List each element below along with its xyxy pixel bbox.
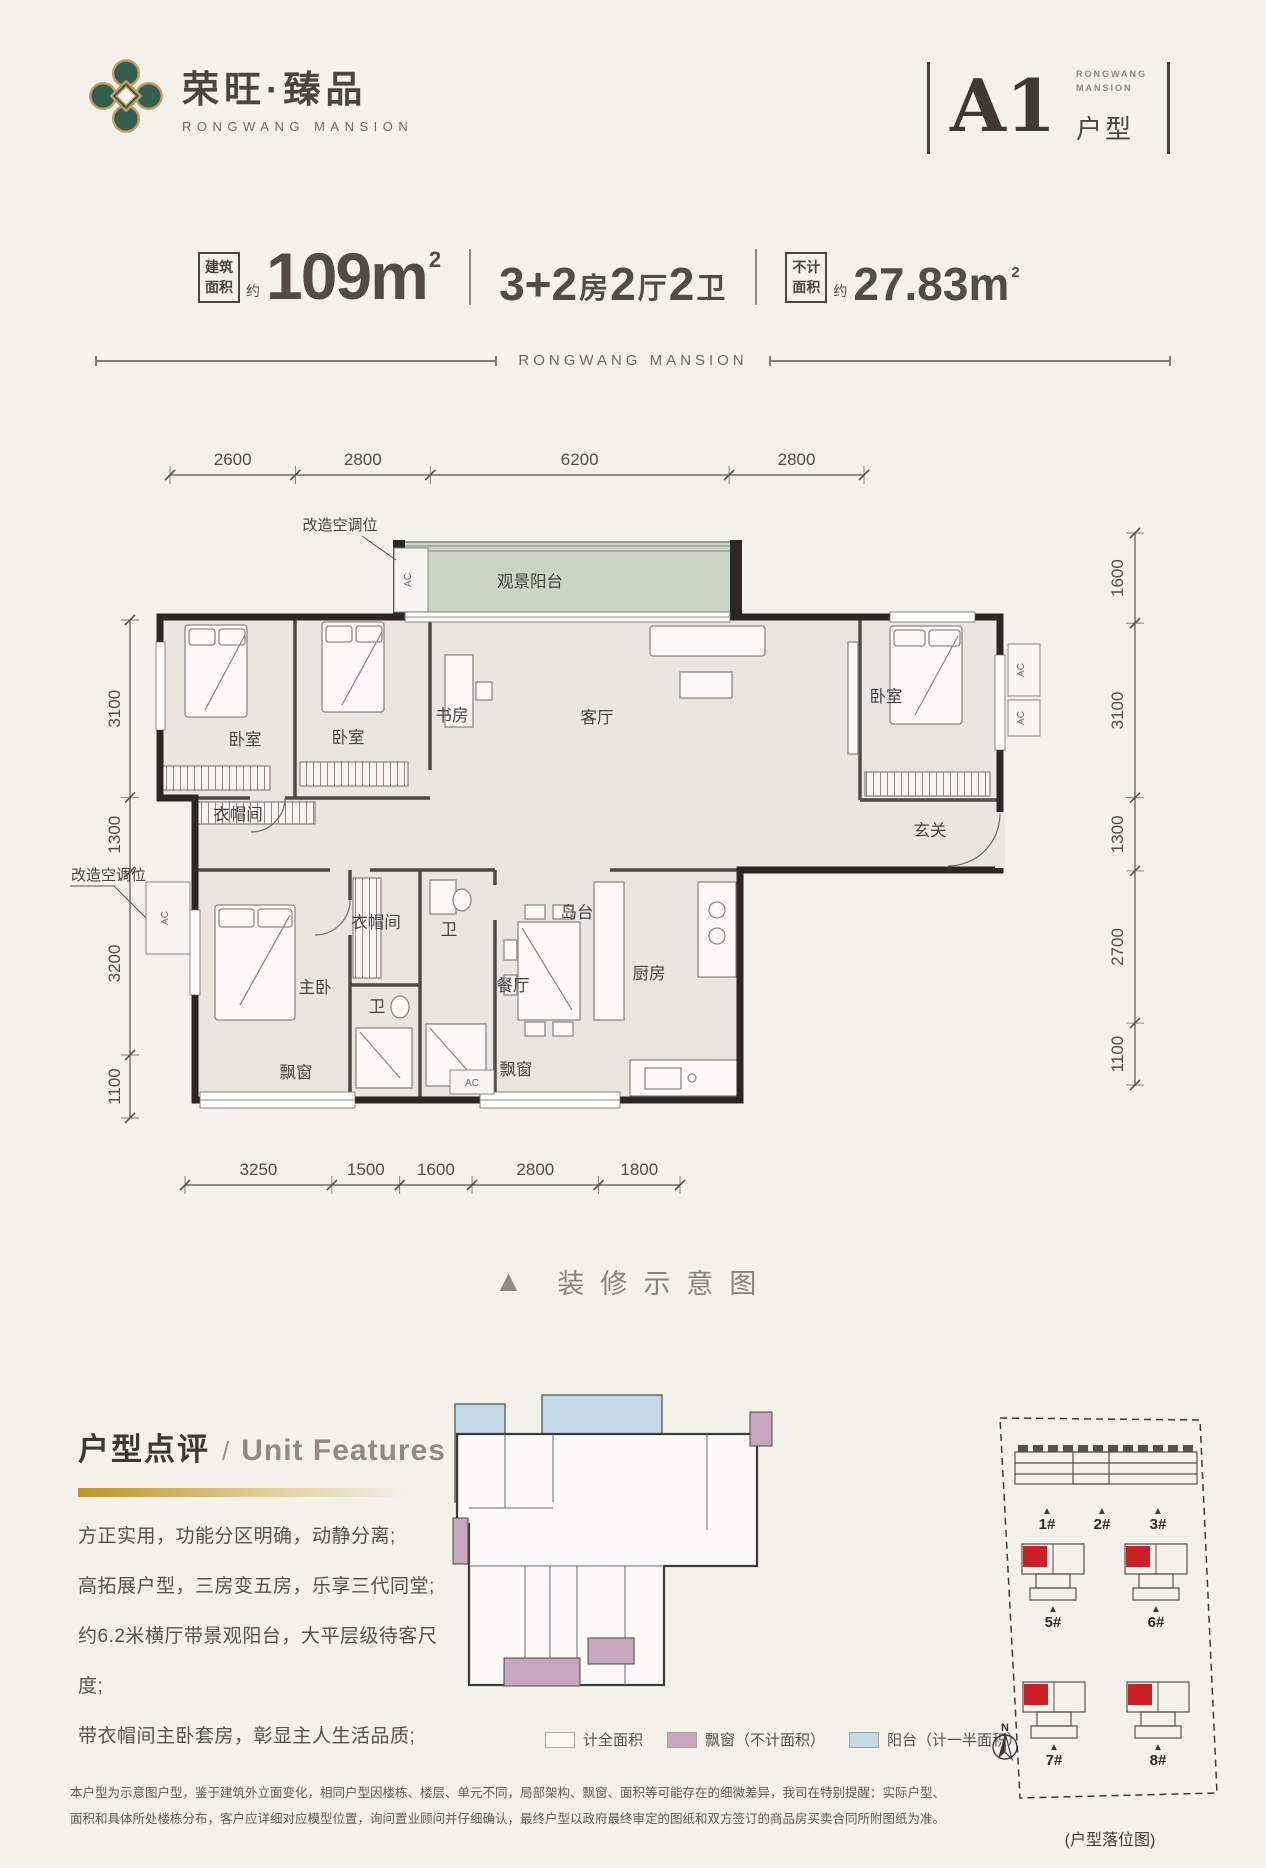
brand-logo: 荣旺·臻品 RONGWANG MANSION xyxy=(88,58,413,134)
feature-list: 方正实用，功能分区明确，动静分离;高拓展户型，三房变五房，乐享三代同堂;约6.2… xyxy=(78,1512,458,1762)
svg-text:AC: AC xyxy=(403,573,414,587)
svg-text:卫: 卫 xyxy=(369,998,386,1016)
divider-line-right xyxy=(769,360,1171,362)
divider-tick xyxy=(769,356,771,366)
legend-swatch xyxy=(849,1732,879,1748)
highlighted-unit xyxy=(1128,1684,1152,1705)
svg-text:1600: 1600 xyxy=(417,1160,455,1179)
divider-tick xyxy=(1169,356,1171,366)
brand-name-en: RONGWANG MANSION xyxy=(182,119,413,134)
build-area-label: 建筑面积 xyxy=(198,252,240,303)
legend-item: 计全面积 xyxy=(545,1729,643,1750)
towers xyxy=(1022,1544,1189,1738)
svg-text:3100: 3100 xyxy=(1108,692,1127,730)
svg-text:8#: 8# xyxy=(1150,1752,1167,1769)
svg-text:客厅: 客厅 xyxy=(581,708,614,727)
features-title-sep: / xyxy=(222,1436,229,1467)
badge-right-bar xyxy=(1167,62,1170,154)
svg-text:5#: 5# xyxy=(1045,1614,1062,1631)
disclaimer-line: 面积和具体所处楼栋分布，客户应详细对应模型位置，询问置业顾问并仔细确认，最终户型… xyxy=(70,1806,980,1832)
build-area-sup: 2 xyxy=(429,247,441,273)
highlighted-unit xyxy=(1126,1546,1150,1567)
triangle-marker-icon: ▲ xyxy=(494,1267,524,1297)
row-building-teeth xyxy=(1018,1445,1193,1452)
legend-label: 计全面积 xyxy=(583,1729,643,1750)
svg-text:卫: 卫 xyxy=(441,921,458,939)
unit-code: A1 xyxy=(950,62,1056,154)
svg-text:AC: AC xyxy=(465,1078,479,1089)
svg-text:衣帽间: 衣帽间 xyxy=(351,913,401,932)
svg-text:1100: 1100 xyxy=(1108,1036,1127,1073)
svg-text:3200: 3200 xyxy=(105,945,124,983)
svg-text:玄关: 玄关 xyxy=(914,821,947,840)
svg-text:卧室: 卧室 xyxy=(332,728,365,747)
svg-text:餐厅: 餐厅 xyxy=(497,976,530,995)
svg-text:AC: AC xyxy=(1016,711,1027,725)
room-count-segment: 厅 xyxy=(638,273,667,306)
svg-text:N: N xyxy=(1001,1722,1009,1734)
svg-text:书房: 书房 xyxy=(436,706,469,725)
svg-text:3100: 3100 xyxy=(105,690,124,728)
svg-text:2800: 2800 xyxy=(778,450,816,469)
svg-text:改造空调位: 改造空调位 xyxy=(71,867,146,884)
divider-tick xyxy=(95,356,97,366)
row-building xyxy=(1015,1452,1197,1484)
legend: 计全面积飘窗（不计面积）阳台（计一半面积） xyxy=(545,1729,1022,1750)
badge-left-bar xyxy=(927,62,930,154)
svg-text:卧室: 卧室 xyxy=(870,687,903,706)
features-title-cn: 户型点评 xyxy=(78,1424,210,1469)
spec-divider xyxy=(755,249,757,305)
spec-row: 建筑面积 约 109m 2 3+2房2厅2卫 不计面积 约 27.83m 2 xyxy=(198,246,1020,307)
room-count-segment: 房 xyxy=(579,273,608,306)
legend-swatch xyxy=(545,1732,575,1748)
svg-text:衣帽间: 衣帽间 xyxy=(213,805,263,824)
tower-building xyxy=(1127,1682,1189,1738)
tower-building xyxy=(1022,1544,1084,1600)
site-plan-caption: (户型落位图) xyxy=(1020,1826,1200,1850)
svg-text:1500: 1500 xyxy=(347,1160,385,1179)
svg-text:改造空调位: 改造空调位 xyxy=(302,517,377,534)
room-count-segment: 2 xyxy=(669,261,695,307)
svg-text:3#: 3# xyxy=(1150,1516,1167,1533)
features-title-en: Unit Features xyxy=(241,1434,446,1468)
svg-text:AC: AC xyxy=(160,911,171,925)
feature-item: 方正实用，功能分区明确，动静分离; xyxy=(78,1512,458,1562)
svg-text:1#: 1# xyxy=(1039,1516,1056,1533)
svg-text:2800: 2800 xyxy=(344,450,382,469)
gold-accent-bar xyxy=(78,1488,412,1497)
feature-item: 带衣帽间主卧套房，彰显主人生活品质; xyxy=(78,1712,458,1762)
svg-text:1600: 1600 xyxy=(1108,559,1127,597)
main-balcony-blue xyxy=(542,1395,662,1435)
svg-text:卧室: 卧室 xyxy=(229,730,262,749)
divider-tick xyxy=(495,356,497,366)
room-count-segment: 2 xyxy=(610,261,636,307)
svg-text:观景阳台: 观景阳台 xyxy=(497,572,563,591)
floorplan: 2600280062002800325015001600280018003100… xyxy=(40,430,1170,1200)
balcony xyxy=(393,540,742,620)
svg-text:3250: 3250 xyxy=(240,1160,278,1179)
badge-subtext: RONGWANGMANSION xyxy=(1076,68,1147,95)
svg-text:7#: 7# xyxy=(1046,1752,1063,1769)
svg-text:1300: 1300 xyxy=(105,816,124,854)
feature-item: 约6.2米横厅带景观阳台，大平层级待客尺度; xyxy=(78,1612,458,1712)
approx-label: 约 xyxy=(833,281,847,301)
unit-type-label: 户型 xyxy=(1076,109,1147,146)
svg-text:1100: 1100 xyxy=(105,1068,124,1105)
tower-building xyxy=(1125,1544,1187,1600)
divider-line-left xyxy=(95,360,497,362)
svg-text:飘窗: 飘窗 xyxy=(500,1060,533,1079)
svg-text:AC: AC xyxy=(1016,663,1027,677)
approx-label: 约 xyxy=(246,281,260,301)
room-count-segment: 3+2 xyxy=(499,261,577,307)
site-plan: ▲1#▲2#▲3#▲5#▲6#▲7#▲8#N xyxy=(985,1395,1240,1815)
legend-label: 飘窗（不计面积） xyxy=(705,1729,825,1750)
excl-area-sup: 2 xyxy=(1011,264,1019,281)
svg-text:2800: 2800 xyxy=(516,1160,554,1179)
svg-text:厨房: 厨房 xyxy=(633,964,666,983)
area-key-diagram xyxy=(452,1390,777,1695)
legend-swatch xyxy=(667,1732,697,1748)
svg-text:2600: 2600 xyxy=(214,450,252,469)
flyer-page: 荣旺·臻品 RONGWANG MANSION A1 RONGWANGMANSIO… xyxy=(0,0,1266,1868)
disclaimer-line: 本户型为示意图户型，鉴于建筑外立面变化，相同户型因楼栋、楼层、单元不同，局部架构… xyxy=(70,1780,980,1806)
tower-building xyxy=(1023,1682,1085,1738)
room-count: 3+2房2厅2卫 xyxy=(499,261,727,307)
legend-item: 飘窗（不计面积） xyxy=(667,1729,825,1750)
divider-text: RONGWANG MANSION xyxy=(503,352,763,369)
svg-text:1800: 1800 xyxy=(620,1160,658,1179)
brand-emblem-icon xyxy=(88,58,164,134)
svg-text:岛台: 岛台 xyxy=(561,903,594,922)
highlighted-unit xyxy=(1023,1546,1047,1567)
highlighted-unit xyxy=(1024,1684,1048,1705)
plan-caption: ▲ 装修示意图 xyxy=(0,1262,1266,1301)
svg-text:飘窗: 飘窗 xyxy=(280,1063,313,1082)
svg-text:6200: 6200 xyxy=(561,450,599,469)
room-count-segment: 卫 xyxy=(696,273,725,306)
excl-area-label: 不计面积 xyxy=(785,252,827,303)
brand-name-cn: 荣旺·臻品 xyxy=(182,59,413,113)
spec-divider xyxy=(469,249,471,305)
features-title: 户型点评 / Unit Features xyxy=(78,1424,446,1469)
excl-area-value: 27.83m xyxy=(853,261,1009,307)
svg-text:6#: 6# xyxy=(1148,1614,1165,1631)
north-arrow-icon xyxy=(993,1733,1017,1759)
svg-text:1300: 1300 xyxy=(1108,815,1127,853)
disclaimer: 本户型为示意图户型，鉴于建筑外立面变化，相同户型因楼栋、楼层、单元不同，局部架构… xyxy=(70,1780,980,1833)
feature-item: 高拓展户型，三房变五房，乐享三代同堂; xyxy=(78,1562,458,1612)
svg-text:2700: 2700 xyxy=(1108,928,1127,966)
svg-text:主卧: 主卧 xyxy=(299,978,332,997)
unit-type-badge: A1 RONGWANGMANSION 户型 xyxy=(927,62,1170,154)
plan-caption-text: 装修示意图 xyxy=(557,1262,772,1301)
build-area-value: 109m xyxy=(266,246,427,307)
svg-text:2#: 2# xyxy=(1094,1516,1111,1533)
